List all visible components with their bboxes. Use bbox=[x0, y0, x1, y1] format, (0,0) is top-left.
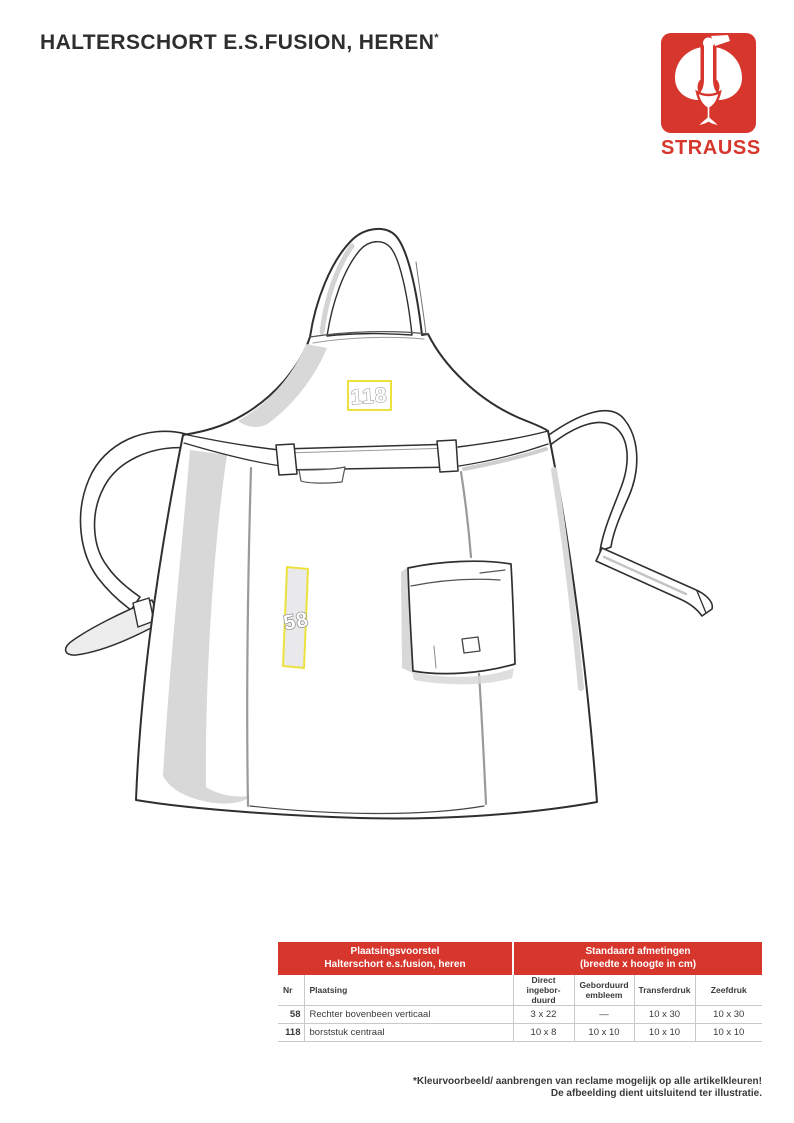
table-header-placement-line2: Halterschort e.s.fusion, heren bbox=[278, 959, 512, 972]
row-58-embleem: — bbox=[574, 1006, 634, 1024]
col-header-plaatsing: Plaatsing bbox=[304, 975, 513, 1006]
table-row-58: 58 Rechter bovenbeen verticaal 3 x 22 — … bbox=[278, 1006, 762, 1024]
col-header-embleem-line1: Geborduurd bbox=[575, 980, 634, 990]
table-header-dimensions-line1: Standaard afmetingen bbox=[514, 946, 762, 959]
table-header-dimensions: Standaard afmetingen (breedte x hoogte i… bbox=[513, 942, 762, 975]
row-118-nr: 118 bbox=[278, 1024, 304, 1042]
col-header-zeefdruk: Zeefdruk bbox=[695, 975, 762, 1006]
row-118-zeefdruk: 10 x 10 bbox=[695, 1024, 762, 1042]
col-header-nr: Nr bbox=[278, 975, 304, 1006]
marker-58-label: 58 bbox=[282, 608, 311, 635]
pocket-button bbox=[462, 637, 480, 653]
row-58-zeefdruk: 10 x 30 bbox=[695, 1006, 762, 1024]
table-red-header-row: Plaatsingsvoorstel Halterschort e.s.fusi… bbox=[278, 942, 762, 975]
row-58-plaatsing: Rechter bovenbeen verticaal bbox=[304, 1006, 513, 1024]
col-header-direct-line2: duurd bbox=[514, 995, 574, 1005]
marker-118-label: 118 bbox=[350, 384, 388, 410]
belt-loop-left bbox=[276, 444, 297, 475]
row-118-embleem: 10 x 10 bbox=[574, 1024, 634, 1042]
table-header-placement: Plaatsingsvoorstel Halterschort e.s.fusi… bbox=[278, 942, 513, 975]
spec-table: Plaatsingsvoorstel Halterschort e.s.fusi… bbox=[278, 942, 762, 1042]
footnote: *Kleurvoorbeeld/ aanbrengen van reclame … bbox=[413, 1076, 762, 1100]
col-header-geborduurd-embleem: Geborduurd embleem bbox=[574, 975, 634, 1006]
row-118-direct: 10 x 8 bbox=[513, 1024, 574, 1042]
col-header-direct-ingeborduurd: Direct ingebor- duurd bbox=[513, 975, 574, 1006]
row-58-direct: 3 x 22 bbox=[513, 1006, 574, 1024]
col-header-embleem-line2: embleem bbox=[575, 990, 634, 1000]
row-118-transferdruk: 10 x 10 bbox=[634, 1024, 695, 1042]
col-header-direct-line1: Direct ingebor- bbox=[514, 975, 574, 995]
row-58-transferdruk: 10 x 30 bbox=[634, 1006, 695, 1024]
col-header-transferdruk: Transferdruk bbox=[634, 975, 695, 1006]
table-header-placement-line1: Plaatsingsvoorstel bbox=[278, 946, 512, 959]
row-118-plaatsing: borststuk centraal bbox=[304, 1024, 513, 1042]
pocket bbox=[401, 561, 515, 684]
row-58-nr: 58 bbox=[278, 1006, 304, 1024]
table-header-dimensions-line2: (breedte x hoogte in cm) bbox=[514, 959, 762, 972]
page: HALTERSCHORT E.S.FUSION, HEREN* STRAUSS bbox=[0, 0, 794, 1123]
footnote-line1: *Kleurvoorbeeld/ aanbrengen van reclame … bbox=[413, 1076, 762, 1088]
table-row-118: 118 borststuk centraal 10 x 8 10 x 10 10… bbox=[278, 1024, 762, 1042]
marker-118: 118 bbox=[348, 381, 391, 410]
footnote-line2: De afbeelding dient uitsluitend ter illu… bbox=[413, 1088, 762, 1100]
belt-loop-right bbox=[437, 440, 458, 472]
table-column-header-row: Nr Plaatsing Direct ingebor- duurd Gebor… bbox=[278, 975, 762, 1006]
